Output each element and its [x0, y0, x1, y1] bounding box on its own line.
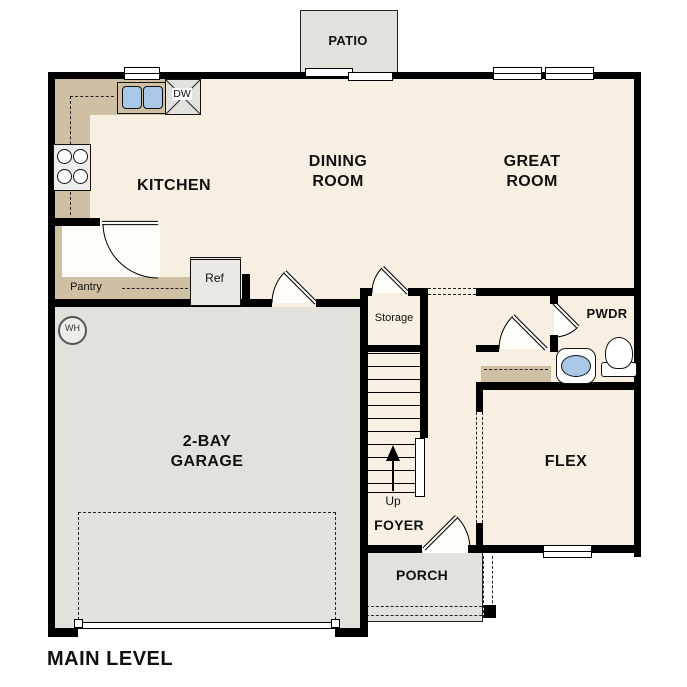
closet-door: [495, 310, 551, 354]
wall-garage-bottom-west: [48, 628, 78, 637]
porch-post: [484, 605, 496, 618]
porch-roof-dash-2: [366, 615, 492, 616]
wall-storage-top-west: [360, 288, 372, 296]
wall-closet-west: [476, 345, 499, 352]
dining-room-label: DINING ROOM: [292, 152, 384, 192]
wall-hall-top: [476, 288, 641, 296]
stair-tread: [368, 392, 420, 393]
plan-title: MAIN LEVEL: [47, 647, 247, 672]
wall-pantry-top: [48, 218, 100, 226]
sink-basin-right: [143, 86, 163, 109]
wall-flex-top: [476, 382, 641, 390]
toilet-bowl: [605, 337, 633, 369]
stair-tread: [368, 353, 420, 354]
porch-area: [364, 553, 483, 622]
stair-railing: [415, 438, 425, 497]
stove-burner: [57, 169, 72, 184]
stairs-up-label: Up: [378, 494, 408, 509]
upper-cabinet-dash-ref: [122, 288, 188, 289]
stair-tread: [368, 366, 420, 367]
stair-tread: [368, 405, 420, 406]
refrigerator-label: Ref: [190, 271, 239, 286]
garage-door-jamb-right: [331, 619, 340, 628]
powder-room-label: PWDR: [578, 306, 636, 322]
porch-label: PORCH: [391, 567, 453, 585]
kitchen-window: [124, 67, 160, 80]
patio-label: PATIO: [300, 33, 396, 49]
powder-sink-basin: [561, 355, 591, 377]
foyer-label: FOYER: [368, 517, 430, 535]
wall-garage-stairs: [360, 288, 368, 637]
stair-tread: [368, 431, 420, 432]
wall-foyer-bottom: [360, 545, 422, 553]
pantry-label: Pantry: [62, 281, 110, 295]
patio-slider-panel-1: [305, 68, 353, 77]
garage-door-dashed-outline: [78, 512, 336, 625]
pantry-door: [98, 216, 168, 284]
closet-shelf-dash: [484, 369, 548, 370]
patio-slider-panel-2: [348, 72, 393, 81]
floor-plan: PATIO Up: [0, 0, 687, 687]
garage-label: 2-BAY GARAGE: [159, 432, 255, 472]
great-room-label: GREAT ROOM: [486, 152, 578, 192]
dishwasher-label: DW: [166, 88, 198, 101]
stairs-up-arrow: [386, 445, 400, 461]
stair-tread: [368, 492, 416, 493]
garage-entry-door: [266, 255, 320, 309]
wall-pwdr-west-lower: [550, 335, 558, 352]
garage-door-jamb-left: [74, 619, 83, 628]
flex-label: FLEX: [535, 452, 597, 472]
great-room-window-1: [493, 67, 542, 80]
wall-pwdr-west-upper: [550, 296, 558, 304]
hall-cased-opening: [428, 288, 476, 295]
porch-roof-dash-1: [366, 606, 492, 607]
water-heater-label: WH: [58, 323, 87, 334]
wall-flex-west-upper: [476, 390, 483, 412]
stove-burner: [73, 169, 88, 184]
storage-label: Storage: [364, 312, 424, 326]
wall-storage-bottom: [360, 345, 428, 352]
stair-tread: [368, 379, 420, 380]
wall-stairs-east: [420, 288, 428, 438]
wall-foyer-bottom-stub: [468, 545, 476, 553]
upper-cabinet-dash-top: [70, 96, 114, 97]
storage-door: [368, 255, 412, 297]
pantry-side-strip: [55, 226, 62, 277]
flex-window: [543, 545, 592, 558]
great-room-window-2: [545, 67, 594, 80]
stairs-up-arrow-stem: [392, 461, 394, 491]
sink-basin-left: [122, 86, 142, 109]
wall-garage-bottom-east: [335, 628, 368, 637]
kitchen-label: KITCHEN: [124, 176, 224, 196]
dishwasher-label-text: DW: [172, 88, 192, 100]
garage-door: [78, 622, 335, 629]
stove-burner: [57, 149, 72, 164]
flex-cased-opening: [476, 412, 483, 523]
stair-tread: [368, 418, 420, 419]
wall-ref-stub: [242, 274, 250, 307]
stove-burner: [73, 149, 88, 164]
